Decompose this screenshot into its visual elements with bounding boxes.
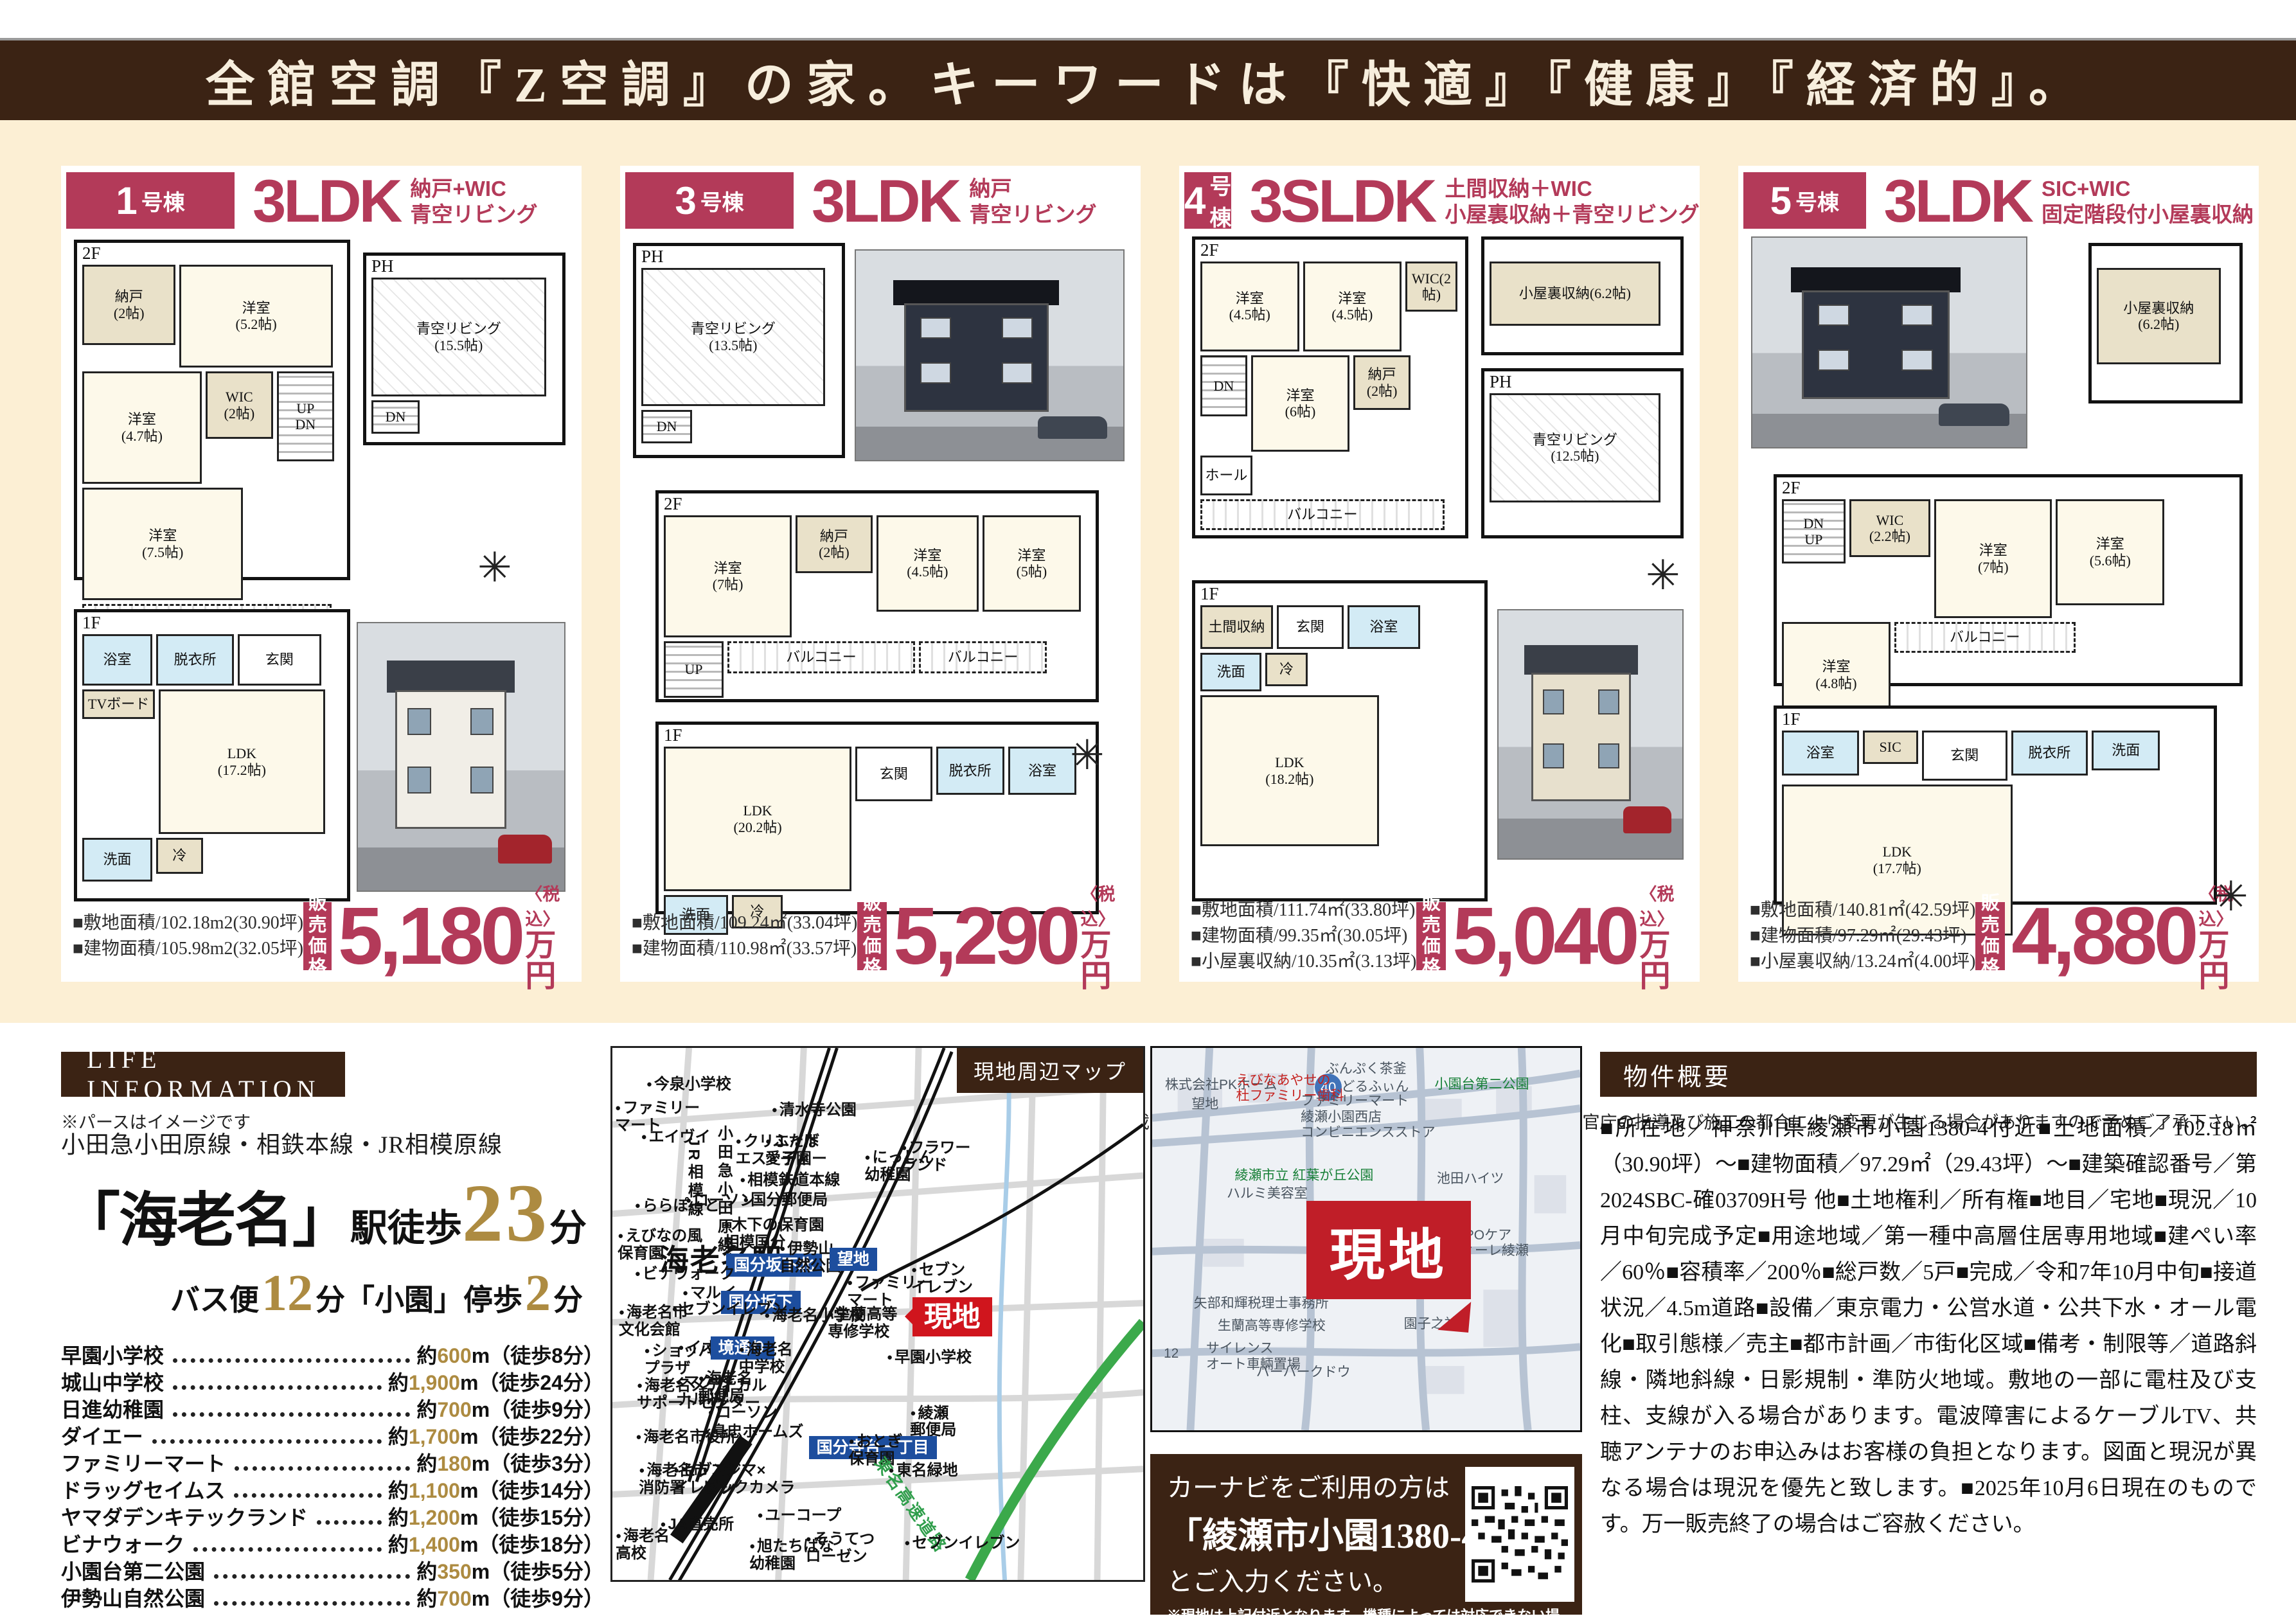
property-outline-header: 物件概要 (1600, 1052, 2257, 1097)
site-marker: 現地 (1306, 1201, 1471, 1299)
plan-room: WIC (2帖) (206, 371, 273, 439)
facility-distance: 約1,200m（徒歩15分） (388, 1502, 604, 1531)
area-map: 現地周辺マップ 今泉小学校ファミリー マートエイヴイJR相模線小田急小田原線クリ… (610, 1046, 1145, 1582)
plan-room: LDK (18.2帖) (1200, 695, 1379, 846)
plan-room: バルコニー (727, 641, 915, 673)
plan-room: ホール (1200, 456, 1252, 495)
area-line: ■小屋裏収納/13.24㎡(4.00坪) (1750, 949, 1975, 975)
plan-room: 洋室 (4.5帖) (1200, 262, 1299, 351)
area-info: ■敷地面積/111.74㎡(33.80坪)■建物面積/99.35㎡(30.05坪… (1191, 898, 1416, 974)
dot-leader (214, 1601, 410, 1606)
plan-room: 青空リビング (15.5帖) (371, 278, 546, 396)
dot-leader (234, 1493, 381, 1498)
floor-tag: 2F (1778, 478, 1804, 498)
price-suffix: 〈税込〉万円 (525, 880, 573, 992)
plan-room: 洋室 (7帖) (1934, 499, 2052, 618)
price-unit: 万円 (525, 930, 573, 992)
map-label: ユーコープ (757, 1507, 841, 1525)
map-label: 国分郵便局 (743, 1192, 828, 1209)
price-unit: 万円 (1640, 930, 1689, 992)
unit-features: 納戸+WIC青空リビング (410, 176, 537, 227)
unit-features: SIC+WIC固定階段付小屋裏収納 (2042, 176, 2254, 227)
map-label: バーバークドウ (1256, 1365, 1351, 1380)
plan-room: 洋室 (4.5帖) (1303, 262, 1402, 351)
dot-leader (214, 1574, 410, 1579)
floor-plan: 2F洋室 (7帖)納戸 (2帖)洋室 (4.5帖)洋室 (5帖)UPバルコニーバ… (655, 490, 1099, 702)
map-label: ローソン (686, 1193, 755, 1210)
plan-room: 浴室 (82, 634, 152, 686)
unit-header: 3号棟 3LDK 納戸青空リビング (625, 172, 1135, 236)
unit-number-suffix: 号棟 (141, 185, 185, 217)
bus-stop-label: 分「小園」停歩 (316, 1277, 522, 1319)
floor-plan: 1F浴室脱衣所玄関TVボードLDK (17.2帖)洗面冷 (74, 609, 350, 901)
facility-row: 城山中学校約1,900m（徒歩24分） (61, 1367, 604, 1394)
plan-room: 洋室 (4.5帖) (877, 515, 979, 612)
plan-room: 浴室 (1348, 605, 1420, 649)
unit-layout-type: 3LDK (1884, 172, 2031, 229)
plan-room: 脱衣所 (936, 747, 1004, 795)
facility-distance: 約1,100m（徒歩14分） (388, 1475, 604, 1504)
facility-row: 小園台第二公園約350m（徒歩5分） (61, 1556, 604, 1583)
bus-unit: 分 (553, 1277, 583, 1319)
plan-room: WIC(2帖) (1405, 262, 1457, 312)
unit-number-badge: 5号棟 (1743, 172, 1866, 229)
area-info: ■敷地面積/140.81㎡(42.59坪)■建物面積/97.29㎡(29.43坪… (1750, 898, 1975, 974)
map-label: 清水寺公園 (772, 1102, 857, 1119)
stop-walk-minutes: 2 (525, 1264, 551, 1323)
plan-room: DN (1200, 355, 1247, 416)
map-label: 早園小学校 (887, 1349, 972, 1367)
top-banner: 全館空調『Z空調』の家。キーワードは『快適』『健康』『経済的』。 (0, 38, 2296, 120)
facility-distance: 約700m（徒歩9分） (416, 1583, 604, 1612)
carnav-box: カーナビをご利用の方は 「綾瀬市小園1380-4付近」 とご入力ください。 ※現… (1150, 1454, 1582, 1615)
map-label: コジマ× ビックカメラ (702, 1462, 795, 1497)
unit-number: 3 (675, 179, 696, 223)
area-map-title: 現地周辺マップ (957, 1048, 1143, 1093)
price-block: 販売 価格 5,040 〈税込〉万円 (1416, 880, 1689, 992)
facility-name: ドラッグセイムス (61, 1475, 225, 1504)
plan-room: 脱衣所 (2011, 731, 2088, 776)
unit-feature: 土間収納＋WIC (1445, 176, 1700, 202)
map-label: 海老名 郵便局 (699, 1370, 752, 1405)
station-walk-unit: 分 (549, 1198, 587, 1252)
north-mark-icon: ✳ (477, 544, 512, 592)
bus-minutes: 12 (262, 1264, 313, 1323)
banner-title: 全館空調『Z空調』の家。キーワードは『快適』『健康』『経済的』。 (206, 45, 2090, 116)
unit-panel-5: 小屋裏収納 (6.2帖)2FDN UPWIC (2.2帖)洋室 (7帖)洋室 (… (1738, 166, 2259, 982)
price-row: ■敷地面積/111.74㎡(33.80坪)■建物面積/99.35㎡(30.05坪… (1191, 894, 1689, 978)
facility-name: 日進幼稚園 (61, 1394, 164, 1423)
facility-row: ファミリーマート約180m（徒歩3分） (61, 1448, 604, 1475)
house-photo (1497, 609, 1684, 860)
facility-distance: 約1,900m（徒歩24分） (388, 1367, 604, 1396)
facility-row: 早園小学校約600m（徒歩8分） (61, 1340, 604, 1367)
price-row: ■敷地面積/140.81㎡(42.59坪)■建物面積/97.29㎡(29.43坪… (1750, 894, 2248, 978)
area-line: ■建物面積/110.98㎡(33.57坪) (632, 936, 857, 962)
map-label: JA直売所 (660, 1516, 734, 1534)
map-label: そうてつ ローゼン (806, 1531, 875, 1566)
plan-room: 玄関 (238, 634, 321, 686)
map-label: 今泉小学校 (646, 1076, 731, 1094)
plan-room: 玄関 (855, 747, 932, 801)
price-value: 5,290 (893, 896, 1076, 977)
price-unit: 万円 (1081, 930, 1130, 992)
map-label: 生蘭高等専修学校 (1218, 1318, 1326, 1334)
area-line: ■建物面積/105.98m2(32.05坪) (73, 936, 303, 962)
price-label: 販売 価格 (303, 902, 332, 970)
plan-room: 洋室 (7.5帖) (82, 488, 243, 600)
plan-room: 洋室 (5帖) (983, 515, 1081, 612)
station-walk-label: 駅徒歩 (350, 1198, 462, 1252)
flyer-page: 全館空調『Z空調』の家。キーワードは『快適』『健康』『経済的』。 2F納戸 (2… (0, 0, 2296, 1623)
facility-name: ビナウォーク (61, 1529, 184, 1558)
plan-room: 洋室 (7帖) (664, 515, 792, 637)
facility-name: ダイエー (61, 1421, 143, 1450)
floor-tag: 1F (1197, 584, 1223, 604)
facility-name: ファミリーマート (61, 1448, 226, 1477)
station-access: 「海老名」 駅徒歩 23 分 (61, 1166, 604, 1261)
floor-plan: PH青空リビング (13.5帖)DN (633, 243, 845, 458)
price-row: ■敷地面積/102.18m2(30.90坪)■建物面積/105.98m2(32.… (73, 894, 571, 978)
unit-number-suffix: 号棟 (1795, 185, 1839, 217)
plan-room: 青空リビング (13.5帖) (641, 268, 825, 406)
map-label: 望地 (1191, 1097, 1218, 1112)
floor-tag: PH (368, 256, 398, 276)
price-suffix: 〈税込〉万円 (1640, 880, 1689, 992)
map-label: ファミリーマート 綾瀬小園西店 コンビニエンスストア (1301, 1094, 1436, 1140)
unit-features: 土間収納＋WIC小屋裏収納＋青空リビング (1445, 176, 1700, 227)
map-label: ローソン (708, 1405, 778, 1422)
floor-tag: 2F (660, 494, 686, 514)
plan-room: 冷 (1265, 653, 1307, 686)
tax-note: 〈税込〉 (525, 880, 573, 930)
map-label: セブンイレブン (904, 1535, 1020, 1552)
floor-plan: PH青空リビング (12.5帖) (1481, 368, 1684, 538)
floor-plan: 1F土間収納玄関浴室洗面冷LDK (18.2帖) (1192, 580, 1488, 901)
area-line: ■敷地面積/111.74㎡(33.80坪) (1191, 898, 1416, 923)
plan-room: バルコニー (1894, 622, 2076, 653)
dot-leader (173, 1412, 410, 1417)
plan-room: 青空リビング (12.5帖) (1490, 393, 1660, 502)
unit-feature: 納戸 (969, 176, 1096, 202)
map-label: ふたば 愛子園 (765, 1133, 819, 1168)
map-label: 海老名 高校 (616, 1528, 670, 1563)
bus-stop-badge: 望地 (830, 1248, 877, 1271)
plan-room: 洗面 (82, 838, 152, 882)
map-label: ハルミ美容室 (1227, 1186, 1308, 1202)
floor-plan: 2FDN UPWIC (2.2帖)洋室 (7帖)洋室 (5.6帖)洋室 (4.8… (1774, 474, 2243, 686)
floor-plans: 2F洋室 (4.5帖)洋室 (4.5帖)WIC(2帖)DN洋室 (6帖)納戸 (… (1179, 166, 1700, 905)
plan-room: 洋室 (5.6帖) (2056, 499, 2164, 605)
dot-leader (317, 1520, 382, 1525)
unit-layout-type: 3SLDK (1249, 172, 1434, 229)
price-unit: 万円 (2199, 930, 2248, 992)
unit-layout-type: 3LDK (812, 172, 959, 229)
unit-number: 1 (116, 179, 137, 223)
plan-room: 洗面 (2092, 731, 2160, 770)
life-information-header: LIFE INFORMATION (61, 1052, 345, 1097)
area-info: ■敷地面積/109.24㎡(33.04坪)■建物面積/110.98㎡(33.57… (632, 910, 857, 962)
floor-tag: 2F (78, 244, 105, 263)
rail-lines: 小田急小田原線・相鉄本線・JR相模原線 (61, 1125, 604, 1160)
unit-header: 1号棟 3LDK 納戸+WIC青空リビング (66, 172, 576, 236)
price-value: 5,040 (1452, 896, 1635, 977)
dot-leader (235, 1466, 410, 1471)
map-label: 綾瀬 郵便局 (910, 1405, 956, 1440)
area-line: ■敷地面積/102.18m2(30.90坪) (73, 910, 303, 936)
plan-room: TVボード (82, 689, 155, 719)
qr-code-pattern (1472, 1486, 1568, 1583)
house-photo (357, 622, 565, 892)
plan-room: 小屋裏収納(6.2帖) (1490, 262, 1660, 326)
price-label: 販売 価格 (1975, 902, 2005, 970)
floor-plans: 小屋裏収納 (6.2帖)2FDN UPWIC (2.2帖)洋室 (7帖)洋室 (… (1738, 166, 2259, 905)
unit-number-badge: 4号棟 (1184, 172, 1231, 229)
price-value: 4,880 (2011, 896, 2194, 977)
plan-room: DN (371, 400, 420, 434)
unit-feature: 納戸+WIC (410, 176, 537, 202)
unit-number: 4 (1184, 179, 1206, 223)
area-line: ■敷地面積/140.81㎡(42.59坪) (1750, 898, 1975, 923)
unit-feature: 小屋裏収納＋青空リビング (1445, 202, 1700, 227)
floor-plan: PH青空リビング (15.5帖)DN (363, 253, 565, 445)
plan-room: 冷 (156, 838, 203, 874)
plan-room: LDK (20.2帖) (664, 747, 851, 891)
unit-panel-1: 2F納戸 (2帖)洋室 (5.2帖)洋室 (4.7帖)WIC (2帖)UP DN… (61, 166, 582, 982)
unit-feature: SIC+WIC (2042, 176, 2254, 202)
facility-row: ヤマダデンキテックランド約1,200m（徒歩15分） (61, 1502, 604, 1529)
plan-room: WIC (2.2帖) (1849, 499, 1931, 557)
floor-plan: 小屋裏収納 (6.2帖) (2088, 243, 2243, 404)
plan-room: 玄関 (1277, 605, 1344, 649)
unit-feature: 青空リビング (410, 202, 537, 227)
qr-code (1465, 1467, 1574, 1602)
facility-distance: 約1,700m（徒歩22分） (388, 1421, 604, 1450)
facility-distance: 約180m（徒歩3分） (416, 1448, 604, 1477)
map-label: 池田ハイツ (1437, 1171, 1504, 1187)
site-marker: 現地 (912, 1297, 992, 1336)
facility-row: 伊勢山自然公園約700m（徒歩9分） (61, 1583, 604, 1610)
floor-plans: PH青空リビング (13.5帖)DN2F洋室 (7帖)納戸 (2帖)洋室 (4.… (620, 166, 1141, 905)
north-mark-icon: ✳ (1070, 731, 1105, 779)
plan-room: 納戸 (2帖) (796, 515, 873, 573)
price-label: 販売 価格 (857, 902, 887, 970)
price-value: 5,180 (338, 896, 521, 977)
facility-row: ダイエー約1,700m（徒歩22分） (61, 1421, 604, 1448)
plan-room: 納戸 (2帖) (82, 265, 175, 345)
facility-row: 日進幼稚園約700m（徒歩9分） (61, 1394, 604, 1421)
unit-header: 5号棟 3LDK SIC+WIC固定階段付小屋裏収納 (1743, 172, 2254, 236)
house-photo (855, 249, 1125, 461)
facility-name: 早園小学校 (61, 1340, 164, 1369)
north-mark-icon: ✳ (1646, 551, 1680, 599)
map-label: どるふぃん (1341, 1079, 1409, 1095)
unit-number: 5 (1770, 179, 1792, 223)
facility-list: 早園小学校約600m（徒歩8分）城山中学校約1,900m（徒歩24分）日進幼稚園… (61, 1340, 604, 1610)
facility-row: ビナウォーク約1,400m（徒歩18分） (61, 1529, 604, 1556)
price-block: 販売 価格 5,290 〈税込〉万円 (857, 880, 1130, 992)
dot-leader (152, 1439, 382, 1444)
station-walk-minutes: 23 (462, 1166, 549, 1261)
floor-plan: 1F浴室SIC玄関脱衣所洗面LDK (17.7帖) (1774, 705, 2217, 905)
map-label: セブン イレブン (911, 1262, 973, 1297)
map-label: 海老名市役所 (636, 1429, 736, 1446)
map-label: 小園台第二公園 (1435, 1077, 1529, 1092)
price-label: 販売 価格 (1416, 902, 1446, 970)
unit-number-badge: 3号棟 (625, 172, 794, 229)
unit-layout-type: 3LDK (253, 172, 400, 229)
unit-panel-3: PH青空リビング (13.5帖)DN2F洋室 (7帖)納戸 (2帖)洋室 (4.… (620, 166, 1141, 982)
plan-room: 洋室 (5.2帖) (179, 265, 332, 368)
plan-room: 玄関 (1922, 731, 2007, 781)
plan-room: DN (641, 410, 692, 443)
map-label: 相模鉄道本線 (740, 1172, 840, 1189)
floor-tag: 1F (1778, 709, 1804, 729)
map-label: フラワー ランド (901, 1140, 970, 1175)
facility-distance: 約1,400m（徒歩18分） (388, 1529, 604, 1558)
facility-distance: 約700m（徒歩9分） (416, 1394, 604, 1423)
facility-name: 伊勢山自然公園 (61, 1583, 205, 1612)
carnav-note: ※現地は上記付近となります。機種によっては対応できない場合があります。 (1167, 1604, 1565, 1623)
floor-tag: PH (637, 247, 668, 267)
property-outline-body: ■所在地／神奈川県綾瀬市小園1380-4付近■土地面積／102.18㎡（30.9… (1600, 1111, 2257, 1543)
area-line: ■建物面積/99.35㎡(30.05坪) (1191, 923, 1416, 949)
plan-room: バルコニー (1200, 499, 1445, 530)
area-line: ■建物面積/97.29㎡(29.43坪) (1750, 923, 1975, 949)
floor-tag: 2F (1197, 240, 1223, 260)
tax-note: 〈税込〉 (1640, 880, 1689, 930)
plan-room: 洋室 (6帖) (1251, 355, 1350, 452)
plan-room: 浴室 (1008, 747, 1076, 795)
house-photo (1751, 236, 2027, 448)
plan-room: 脱衣所 (156, 634, 234, 686)
plan-room: DN UP (1782, 499, 1846, 563)
facility-name: 城山中学校 (61, 1367, 164, 1396)
station-name: 「海老名」 (61, 1173, 350, 1258)
dot-leader (193, 1547, 382, 1552)
plan-room: SIC (1863, 731, 1918, 764)
floor-plans: 2F納戸 (2帖)洋室 (5.2帖)洋室 (4.7帖)WIC (2帖)UP DN… (61, 166, 582, 905)
facility-row: ドラッグセイムス約1,100m（徒歩14分） (61, 1475, 604, 1502)
plan-room: 洋室 (4.7帖) (82, 371, 202, 484)
unit-panel-4: 2F洋室 (4.5帖)洋室 (4.5帖)WIC(2帖)DN洋室 (6帖)納戸 (… (1179, 166, 1700, 982)
property-outline: 物件概要 ■所在地／神奈川県綾瀬市小園1380-4付近■土地面積／102.18㎡… (1600, 1052, 2257, 1543)
price-row: ■敷地面積/109.24㎡(33.04坪)■建物面積/110.98㎡(33.57… (632, 894, 1130, 978)
plan-room: 土間収納 (1200, 605, 1273, 649)
price-block: 販売 価格 5,180 〈税込〉万円 (303, 880, 573, 992)
dot-leader (173, 1358, 410, 1363)
plan-room: バルコニー (919, 641, 1047, 673)
price-suffix: 〈税込〉万円 (1081, 880, 1130, 992)
unit-features: 納戸青空リビング (969, 176, 1096, 227)
price-block: 販売 価格 4,880 〈税込〉万円 (1975, 880, 2248, 992)
map-label: 生蘭高等 専修学校 (828, 1306, 897, 1341)
unit-number-badge: 1号棟 (66, 172, 235, 229)
area-info: ■敷地面積/102.18m2(30.90坪)■建物面積/105.98m2(32.… (73, 910, 303, 962)
site-map: 40 12 現地 株式会社PKホームえびなあやせの 杜ファミリー歯科ぶんぷく茶釜… (1150, 1046, 1582, 1432)
plan-room: 洗面 (1200, 653, 1261, 691)
floor-tag: 1F (78, 613, 105, 633)
floor-plan: 2F洋室 (4.5帖)洋室 (4.5帖)WIC(2帖)DN洋室 (6帖)納戸 (… (1192, 236, 1468, 538)
plan-room: LDK (17.2帖) (159, 689, 325, 834)
life-information: LIFE INFORMATION 小田急小田原線・相鉄本線・JR相模原線 「海老… (61, 1052, 604, 1610)
bus-label: バス便 (170, 1277, 259, 1319)
unit-feature: 固定階段付小屋裏収納 (2042, 202, 2254, 227)
unit-header: 4号棟 3SLDK 土間収納＋WIC小屋裏収納＋青空リビング (1184, 172, 1695, 236)
map-label: 綾瀬市立 紅葉が丘公園 (1235, 1168, 1374, 1184)
unit-number-suffix: 号棟 (1209, 169, 1231, 232)
floor-tag: PH (1486, 372, 1516, 392)
floor-plan: 2F納戸 (2帖)洋室 (5.2帖)洋室 (4.7帖)WIC (2帖)UP DN… (74, 240, 350, 580)
facility-name: 小園台第二公園 (61, 1556, 205, 1585)
dot-leader (173, 1385, 382, 1390)
plan-room: UP (664, 641, 724, 698)
floor-tag: 1F (660, 725, 686, 745)
floor-plan: 小屋裏収納(6.2帖) (1481, 236, 1684, 355)
plan-room: 小屋裏収納 (6.2帖) (2097, 268, 2221, 364)
area-line: ■敷地面積/109.24㎡(33.04坪) (632, 910, 857, 936)
map-corner-number: 12 (1164, 1346, 1179, 1361)
plan-room: 浴室 (1782, 731, 1859, 776)
plan-room: 納戸 (2帖) (1353, 355, 1411, 410)
map-label: ビナウォーク (635, 1266, 735, 1283)
units-background: 2F納戸 (2帖)洋室 (5.2帖)洋室 (4.7帖)WIC (2帖)UP DN… (0, 120, 2296, 1023)
facility-distance: 約600m（徒歩8分） (416, 1340, 604, 1369)
area-line: ■小屋裏収納/10.35㎡(3.13坪) (1191, 949, 1416, 975)
facility-name: ヤマダデンキテックランド (61, 1502, 308, 1531)
tax-note: 〈税込〉 (1081, 880, 1130, 930)
facility-distance: 約350m（徒歩5分） (416, 1556, 604, 1585)
map-label: 海老名市 文化会館 (619, 1304, 688, 1339)
unit-number-suffix: 号棟 (700, 185, 744, 217)
plan-room: UP DN (277, 371, 334, 461)
map-label: ぶんぷく茶釜 (1326, 1061, 1407, 1077)
unit-feature: 青空リビング (969, 202, 1096, 227)
bus-access: バス便 12 分「小園」停歩 2 分 (170, 1264, 604, 1323)
north-mark-icon: ✳ (2214, 873, 2248, 921)
